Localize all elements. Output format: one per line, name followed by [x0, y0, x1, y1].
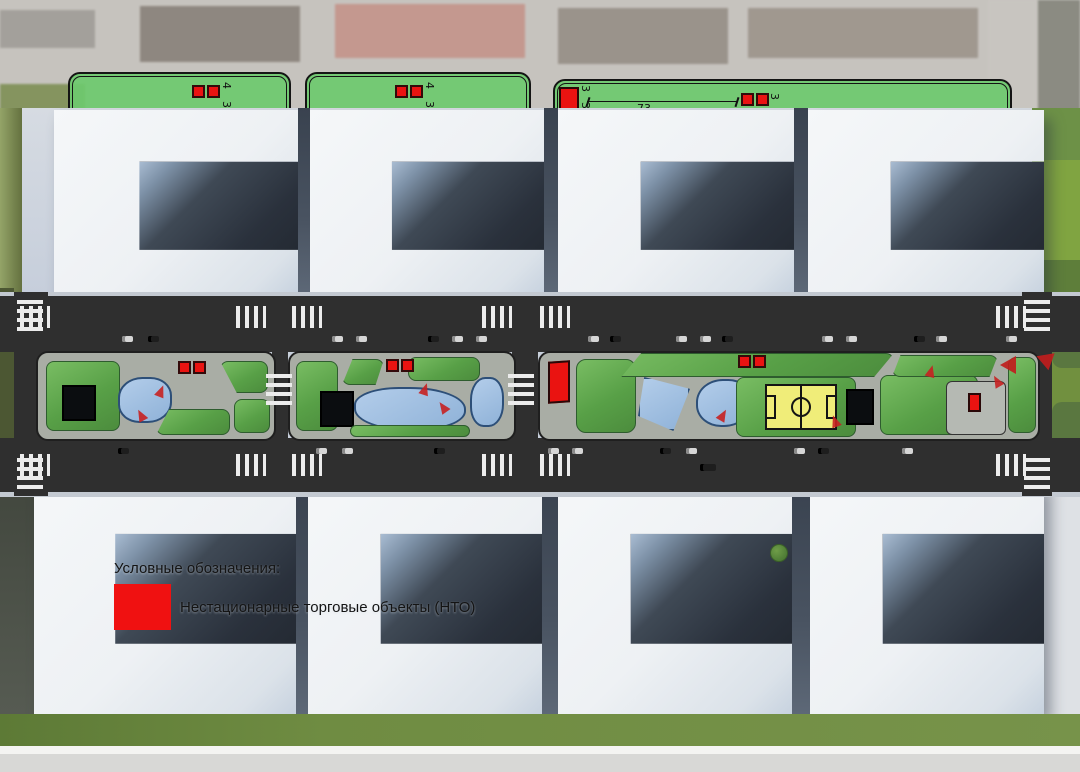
lawn [350, 425, 470, 437]
car [118, 448, 129, 454]
goal-box [767, 395, 776, 419]
nto-marker [968, 393, 981, 412]
building-block [54, 110, 298, 294]
car [122, 336, 133, 342]
car [676, 336, 687, 342]
nto-marker [741, 93, 769, 106]
grass-strip-south [0, 714, 1080, 746]
courtyard [392, 162, 544, 250]
crosswalk [292, 306, 322, 328]
road-far-south [0, 754, 1080, 772]
sidewalk-south [0, 746, 1080, 754]
planting-zone-b: 4 3 [305, 72, 531, 110]
crosswalk [1024, 458, 1050, 490]
car [700, 336, 711, 342]
truck [700, 464, 716, 471]
playground-square [62, 385, 96, 421]
aerial-trees [1038, 0, 1080, 110]
grass-west [0, 108, 22, 296]
pond [638, 377, 690, 431]
lawn [408, 357, 480, 381]
playground-square [846, 389, 874, 425]
car [822, 336, 833, 342]
legend: Условные обозначения: Нестационарные тор… [114, 560, 475, 630]
crosswalk [482, 306, 512, 328]
car [588, 336, 599, 342]
aerial-rowhouses [748, 8, 978, 58]
side-street [542, 480, 558, 714]
legend-item: Нестационарные торговые объекты (НТО) [114, 584, 475, 630]
car [428, 336, 439, 342]
nto-marker [386, 359, 414, 372]
curb [0, 492, 1080, 497]
car [572, 448, 583, 454]
crosswalk [1024, 300, 1050, 332]
nto-marker [178, 361, 206, 374]
nto-marker [395, 85, 423, 98]
side-street [298, 108, 310, 294]
nto-marker-large [548, 360, 570, 404]
football-field [765, 384, 837, 430]
side-street [792, 480, 810, 714]
courtyard [641, 162, 794, 250]
dim-label: 3 [424, 101, 435, 108]
car [794, 448, 805, 454]
courtyard [883, 534, 1044, 644]
building-block [808, 110, 1044, 294]
aerial-rowhouses [140, 6, 300, 62]
courtyard [139, 162, 298, 250]
site-plan: 4 3 4 3 3 3 73 4 3 [0, 0, 1080, 772]
car [722, 336, 733, 342]
aerial-buildings [0, 10, 95, 48]
dim-label: 4 [221, 82, 232, 89]
pond [470, 377, 504, 427]
render-area [0, 108, 1080, 772]
car [476, 336, 487, 342]
building-block [310, 110, 544, 294]
car [914, 336, 925, 342]
shadow-southwest [0, 492, 34, 714]
dim-label: 3 [580, 85, 591, 92]
aerial-rowhouses-pink [335, 4, 525, 58]
crosswalk [996, 306, 1026, 328]
park-segment-3 [538, 351, 1040, 441]
building-block [558, 480, 792, 714]
crosswalk [482, 454, 512, 476]
car [434, 448, 445, 454]
crosswalk [17, 300, 43, 332]
car [316, 448, 327, 454]
nto-marker [738, 355, 766, 368]
car [936, 336, 947, 342]
courtyard [891, 162, 1044, 250]
car [342, 448, 353, 454]
car [1006, 336, 1017, 342]
crosswalk [996, 454, 1026, 476]
car [686, 448, 697, 454]
car [452, 336, 463, 342]
dimension-line [587, 101, 737, 102]
car [332, 336, 343, 342]
nto-swatch [114, 584, 171, 630]
red-arrow-mark [1000, 356, 1016, 374]
dim-label: 4 [424, 82, 435, 89]
lawn [576, 359, 636, 433]
car [148, 336, 159, 342]
pavement-east [1044, 496, 1080, 714]
crosswalk [540, 454, 570, 476]
building-block [558, 110, 794, 294]
park-segment-1 [36, 351, 276, 441]
crosswalk [236, 306, 266, 328]
crosswalk [266, 374, 292, 406]
car [818, 448, 829, 454]
lawn [342, 359, 384, 385]
side-street [794, 108, 808, 294]
crosswalk [540, 306, 570, 328]
car [356, 336, 367, 342]
nto-marker [559, 87, 579, 110]
nto-marker [192, 85, 220, 98]
legend-title: Условные обозначения: [114, 560, 475, 577]
lawn [234, 399, 270, 433]
lawn [892, 355, 998, 377]
aerial-photo-strip: 4 3 4 3 3 3 73 4 3 [0, 0, 1080, 110]
car [610, 336, 621, 342]
courtyard [631, 534, 792, 644]
dim-label: 3 [221, 101, 232, 108]
planting-zone-c: 3 3 73 4 3 [553, 79, 1012, 110]
building-block [810, 480, 1044, 714]
playground-square [320, 391, 354, 427]
tree [770, 544, 788, 562]
legend-item-label: Нестационарные торговые объекты (НТО) [180, 599, 475, 616]
park-segment-2 [288, 351, 516, 441]
crosswalk [236, 454, 266, 476]
side-street [544, 108, 558, 294]
car [548, 448, 559, 454]
crosswalk [292, 454, 322, 476]
lawn [220, 361, 268, 393]
planting-zone-a: 4 3 [68, 72, 291, 110]
car [660, 448, 671, 454]
car [902, 448, 913, 454]
car [846, 336, 857, 342]
crosswalk [17, 458, 43, 490]
aerial-rowhouses [558, 8, 728, 64]
crosswalk [508, 374, 534, 406]
dim-label: 3 [769, 93, 780, 100]
